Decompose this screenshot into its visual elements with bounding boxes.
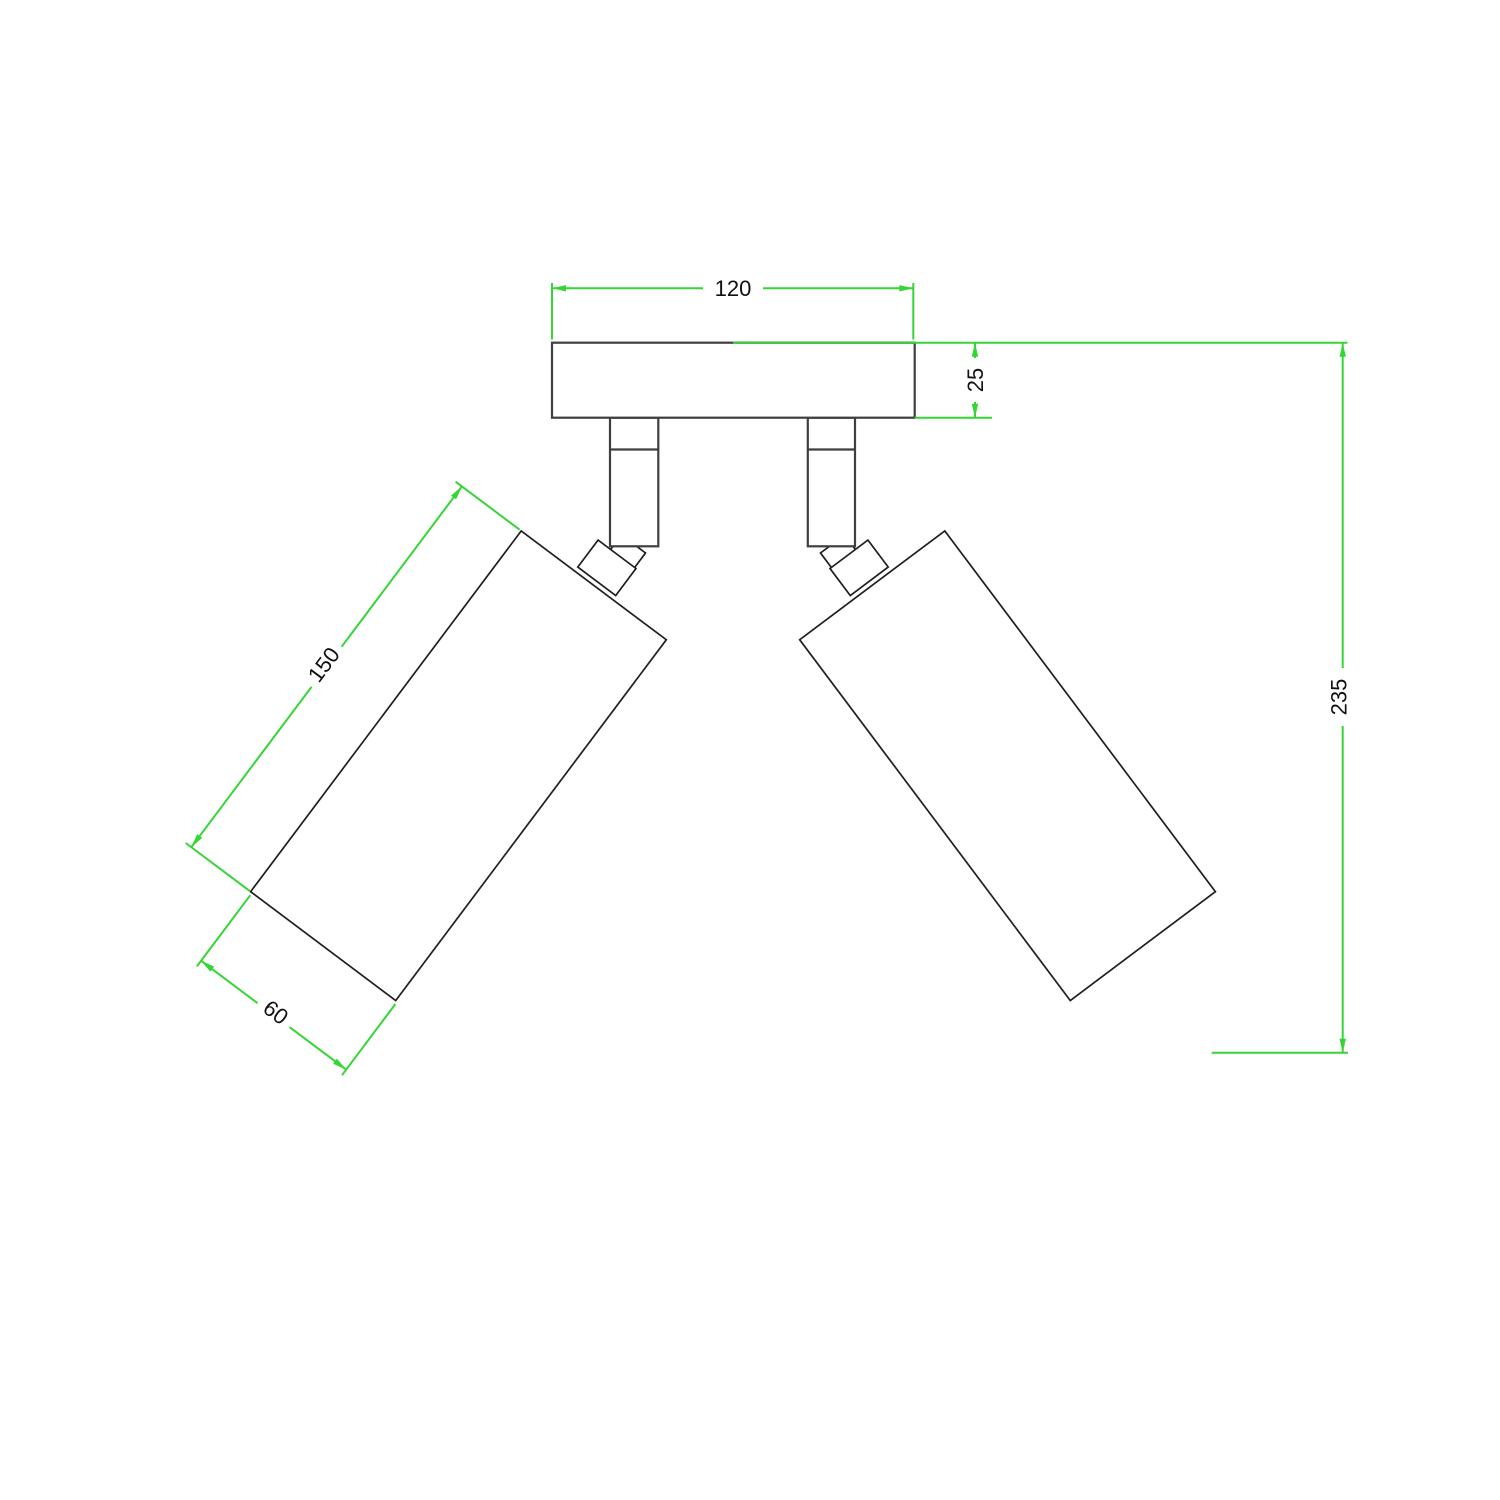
right-head-assembly [766, 485, 1216, 1000]
technical-drawing-canvas: 120 25 235 150 60 [0, 0, 1500, 1500]
left-stem [610, 418, 658, 547]
mounting-plate [552, 343, 915, 418]
dimension-label-shade-length: 150 [303, 643, 345, 687]
right-stem [808, 418, 855, 547]
left-shade [251, 531, 667, 1001]
left-head-assembly [251, 485, 701, 1000]
dimension-overall-height: 235 [1212, 343, 1352, 1053]
dimension-label-shade-width: 60 [258, 995, 293, 1030]
dimension-drawing: 120 25 235 150 60 [0, 0, 1500, 1500]
dimension-plate-width: 120 [552, 276, 913, 340]
dimension-plate-thickness: 25 [915, 343, 992, 418]
right-shade [800, 531, 1216, 1001]
dimension-label-plate-width: 120 [715, 276, 752, 301]
dimension-label-plate-thickness: 25 [963, 368, 988, 392]
dimension-label-overall-height: 235 [1327, 679, 1352, 716]
